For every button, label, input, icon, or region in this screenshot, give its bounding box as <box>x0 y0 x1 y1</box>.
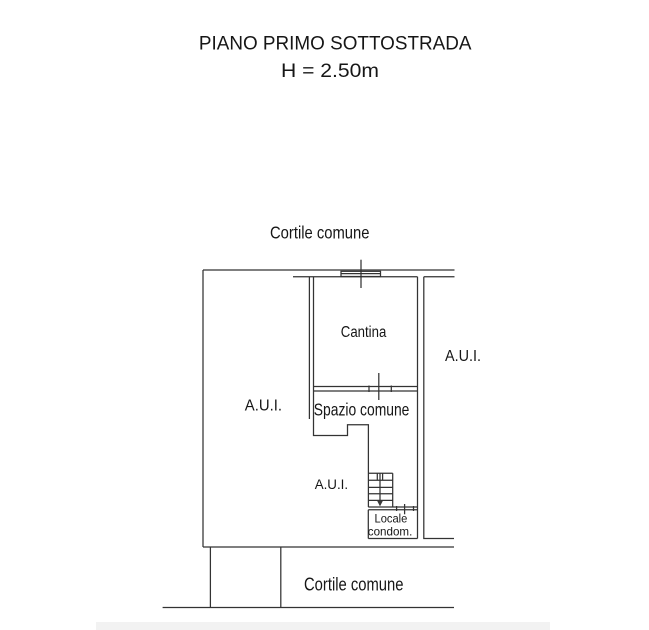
svg-text:A.U.I.: A.U.I. <box>245 398 282 415</box>
svg-text:Cortile comune: Cortile comune <box>270 222 370 242</box>
svg-text:Cortile comune: Cortile comune <box>304 575 404 595</box>
svg-text:condom.: condom. <box>368 525 413 539</box>
svg-text:Spazio comune: Spazio comune <box>314 399 410 419</box>
svg-text:H = 2.50m: H = 2.50m <box>281 60 379 82</box>
svg-text:Cantina: Cantina <box>341 324 387 341</box>
svg-text:A.U.I.: A.U.I. <box>315 477 348 493</box>
svg-text:Locale: Locale <box>375 512 408 526</box>
svg-text:A.U.I.: A.U.I. <box>445 348 481 365</box>
svg-text:PIANO PRIMO SOTTOSTRADA: PIANO PRIMO SOTTOSTRADA <box>199 33 472 55</box>
